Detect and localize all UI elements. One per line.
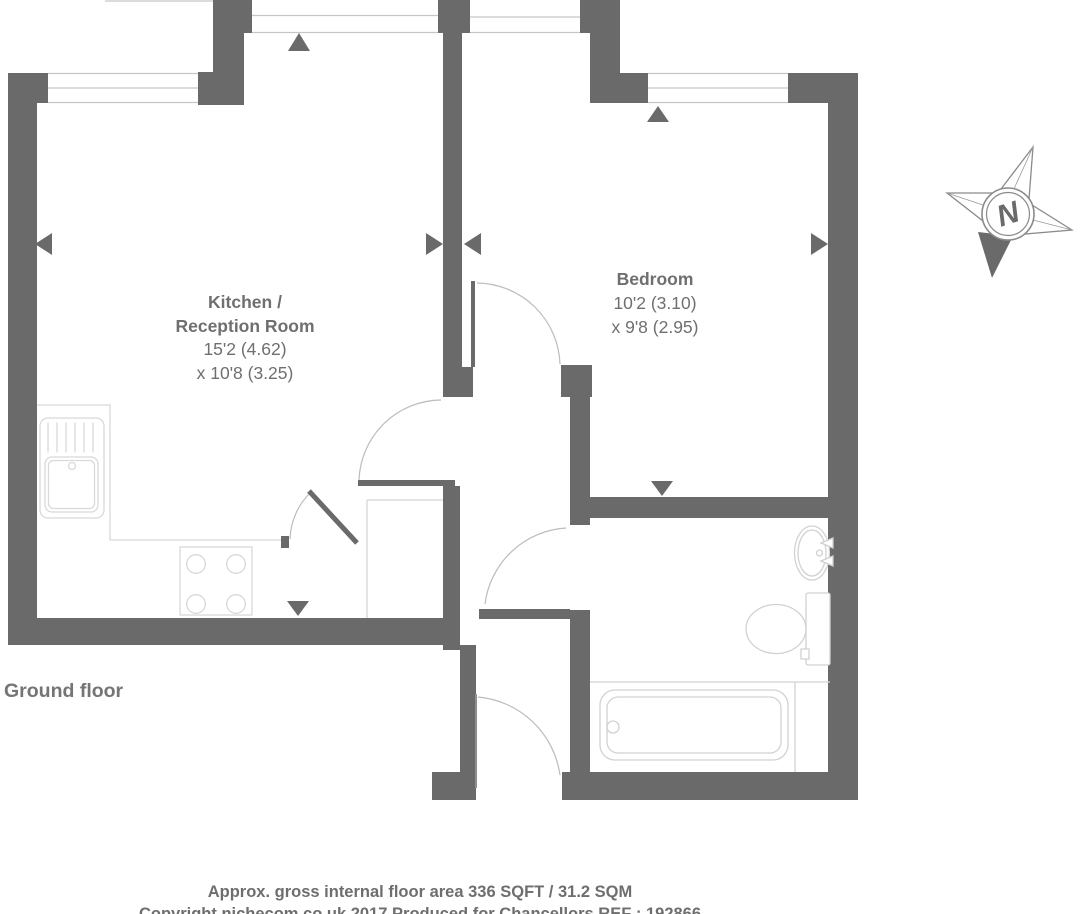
- wall-top-pillar-c3: [590, 73, 648, 103]
- wash-basin: [795, 526, 834, 580]
- wall-bedroom-door-jamb: [561, 365, 592, 397]
- wall-top-pillar-a2: [213, 33, 244, 73]
- bathtub: [600, 690, 788, 760]
- kitchen-label: Kitchen / Reception Room 15'2 (4.62) x 1…: [125, 291, 365, 385]
- kitchen-fixtures: [37, 405, 443, 618]
- kitchen-door-leaf: [358, 480, 455, 486]
- arrow-kitchen-right: [426, 233, 443, 255]
- window-bedroom-upper: [470, 17, 580, 33]
- closet: [367, 500, 443, 618]
- entrance-door: [476, 694, 560, 788]
- kitchen-name-line1: Kitchen /: [125, 291, 365, 315]
- wall-top-pillar-a: [213, 0, 252, 33]
- kitchen-dim-line2: x 10'8 (3.25): [125, 362, 365, 386]
- arrow-bedroom-left: [464, 233, 481, 255]
- wall-left-corner: [8, 73, 48, 103]
- wall-middle-step: [443, 367, 473, 397]
- closet-door-leaf: [309, 491, 357, 543]
- kitchen-sink: [40, 418, 104, 518]
- arrow-bedroom-right: [811, 233, 828, 255]
- bedroom-label: Bedroom 10'2 (3.10) x 9'8 (2.95): [535, 267, 775, 339]
- kitchen-counter: [37, 405, 281, 540]
- arrow-kitchen-down: [287, 601, 309, 616]
- window-kitchen-top: [252, 16, 438, 33]
- sink-tap: [69, 463, 76, 470]
- arrow-kitchen-up: [288, 33, 310, 51]
- wall-right: [828, 103, 858, 800]
- bathroom-fixtures: [590, 526, 833, 772]
- arrow-kitchen-left: [35, 233, 52, 255]
- wall-hall-left: [460, 645, 476, 772]
- kitchen-hob: [180, 547, 252, 615]
- bedroom-dim-line1: 10'2 (3.10): [535, 291, 775, 315]
- wall-top-pillar-b: [438, 0, 470, 33]
- bedroom-dim-line2: x 9'8 (2.95): [535, 315, 775, 339]
- compass-rose: N: [947, 147, 1072, 278]
- wall-top-pillar-c: [580, 0, 620, 33]
- copyright-note: Copyright nichecom.co.uk 2017 Produced f…: [130, 905, 710, 914]
- bathroom-door: [479, 528, 570, 619]
- wall-hall-bath-lower: [570, 610, 590, 772]
- wall-top-pillar-a3: [198, 72, 244, 105]
- wall-below-kitchen-door: [443, 486, 460, 650]
- wall-bathroom-top: [582, 497, 828, 518]
- kitchen-door: [358, 400, 455, 486]
- windows: [48, 1, 788, 103]
- wall-kitchen-bottom: [8, 618, 460, 645]
- closet-door: [281, 491, 357, 548]
- wall-bathroom-bottom: [562, 772, 858, 800]
- arrow-bedroom-up: [647, 106, 669, 122]
- wall-middle: [443, 33, 462, 367]
- window-top-left: [48, 74, 198, 103]
- area-note: Approx. gross internal floor area 336 SQ…: [130, 883, 710, 902]
- closet-door-stub: [281, 536, 289, 548]
- floorplan-drawing: N: [0, 0, 1080, 914]
- arrow-bedroom-down: [651, 481, 673, 496]
- toilet-bowl: [746, 605, 806, 654]
- bedroom-door-leaf: [471, 281, 475, 367]
- wall-top-pillar-c2: [590, 33, 620, 73]
- wall-top-right-corner: [788, 73, 858, 103]
- window-bedroom-main: [648, 74, 788, 103]
- floorplan-page: N Kitchen / Reception Room 15'2 (4.62) x…: [0, 0, 1080, 914]
- kitchen-name-line2: Reception Room: [125, 315, 365, 339]
- toilet-flush: [801, 649, 809, 659]
- wall-left: [8, 103, 37, 645]
- bathroom-door-leaf: [479, 609, 570, 619]
- floor-title: Ground floor: [4, 680, 123, 703]
- bedroom-name: Bedroom: [535, 267, 775, 291]
- kitchen-dim-line1: 15'2 (4.62): [125, 338, 365, 362]
- wall-hall-bottom-block: [432, 772, 476, 800]
- toilet: [746, 593, 830, 665]
